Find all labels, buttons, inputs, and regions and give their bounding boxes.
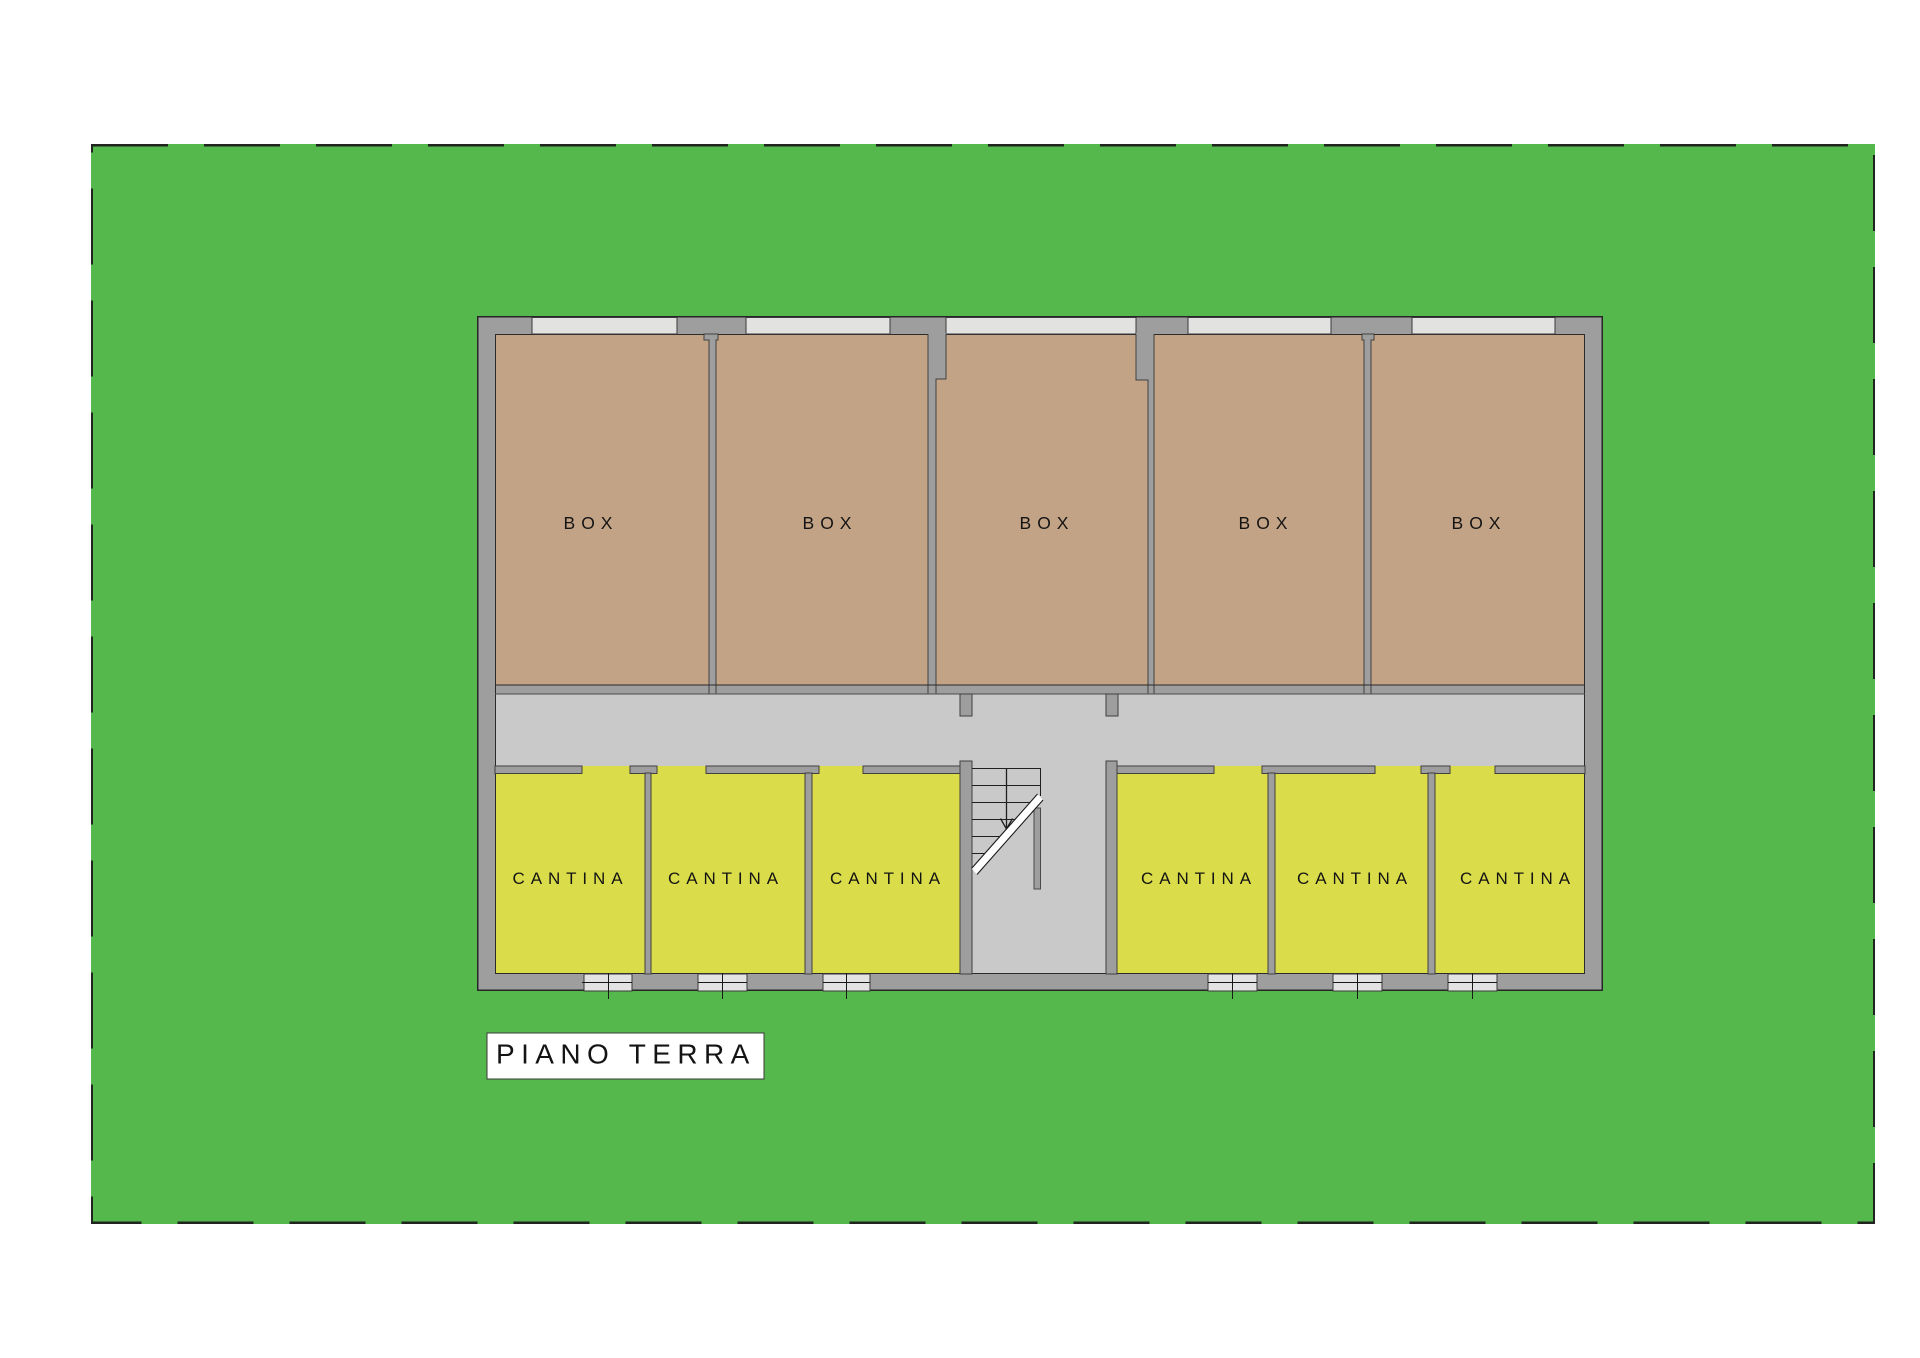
svg-text:BOX: BOX [803, 513, 858, 533]
svg-text:BOX: BOX [1239, 513, 1294, 533]
svg-text:BOX: BOX [1452, 513, 1507, 533]
svg-text:CANTINA: CANTINA [830, 869, 946, 888]
svg-text:BOX: BOX [1020, 513, 1075, 533]
svg-text:CANTINA: CANTINA [1460, 869, 1576, 888]
svg-text:BOX: BOX [564, 513, 619, 533]
svg-text:CANTINA: CANTINA [513, 869, 629, 888]
svg-text:CANTINA: CANTINA [1141, 869, 1257, 888]
svg-text:CANTINA: CANTINA [1297, 869, 1413, 888]
svg-text:CANTINA: CANTINA [668, 869, 784, 888]
svg-text:PIANO TERRA: PIANO TERRA [496, 1039, 756, 1070]
